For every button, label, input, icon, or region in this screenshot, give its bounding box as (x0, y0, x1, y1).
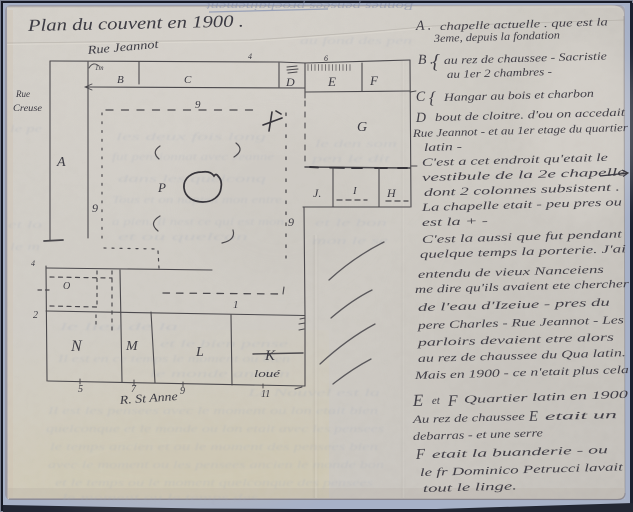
svg-text:a pien. Il nest ce qui est mon: a pien. Il nest ce qui est mon (112, 217, 284, 228)
svg-text:Creuse: Creuse (13, 103, 42, 113)
svg-text:A: A (56, 155, 66, 170)
svg-text:1: 1 (233, 299, 239, 311)
svg-text:les deux fois long: les deux fois long (116, 132, 266, 143)
svg-text:et le bon: et le bon (315, 218, 387, 229)
svg-text:loué: loué (254, 368, 282, 380)
svg-text:P: P (157, 180, 166, 195)
svg-text:le m: le m (10, 242, 41, 253)
svg-text:9: 9 (92, 201, 98, 215)
svg-text:9: 9 (180, 386, 185, 397)
svg-text:2: 2 (33, 310, 38, 321)
svg-text:M: M (125, 339, 139, 354)
svg-text:C: C (184, 74, 192, 86)
svg-text:E: E (412, 391, 425, 410)
svg-text:et: et (432, 395, 441, 407)
svg-text:G: G (357, 120, 367, 135)
svg-text:et lo: et lo (8, 220, 42, 231)
svg-text:le pe: le pe (10, 124, 43, 135)
svg-text:J.: J. (313, 186, 321, 200)
svg-text:le den som: le den som (315, 139, 398, 150)
svg-text:F: F (369, 73, 379, 88)
svg-text:le temps ancien et ou le momen: le temps ancien et ou le moment des pens… (50, 442, 378, 453)
svg-text:4: 4 (248, 52, 252, 61)
svg-text:le moment ou le temps des: le moment ou le temps des (62, 493, 258, 504)
svg-text:L: L (195, 345, 204, 360)
svg-text:H: H (386, 186, 397, 200)
svg-text:et le temps ou le moment quelc: et le temps ou le moment quelconque des … (55, 478, 373, 489)
svg-text:au fond des pen: au fond des pen (300, 36, 412, 47)
svg-text:fut pensionnat avec Jeanne: fut pensionnat avec Jeanne (112, 152, 274, 163)
svg-text:D: D (285, 75, 295, 89)
svg-text:Tous et on napten mon entre: Tous et on napten mon entre (112, 195, 282, 206)
svg-text:Il est les pensees avec le mom: Il est les pensees avec le moment ou lon… (46, 406, 378, 417)
svg-text:B: B (117, 74, 124, 86)
svg-text:dans les quelconq: dans les quelconq (118, 174, 266, 185)
svg-text:E: E (327, 74, 336, 89)
svg-text:F: F (447, 393, 458, 410)
svg-text:4: 4 (31, 259, 35, 268)
svg-text:K: K (264, 348, 276, 364)
svg-text:pen le dit: pen le dit (310, 154, 392, 165)
svg-text:5: 5 (78, 384, 83, 395)
svg-text:11: 11 (261, 389, 270, 400)
svg-text:6: 6 (324, 54, 328, 63)
svg-text:le lieu de la: le lieu de la (60, 322, 178, 333)
svg-text:9: 9 (195, 99, 201, 111)
svg-text:Rue: Rue (15, 89, 30, 99)
svg-text:est la + -: est la + - (422, 215, 489, 229)
svg-text:quelconque et le monde ou lon: quelconque et le monde ou lon etait avec… (46, 424, 384, 435)
svg-text:O: O (63, 281, 70, 292)
svg-text:Il est en ce temps le moment o: Il est en ce temps le moment ou bien (56, 354, 290, 365)
svg-text:1m: 1m (95, 64, 104, 72)
svg-text:D: D (415, 111, 427, 126)
svg-text:avec le moment ou les pensees: avec le moment ou les pensees ancien le … (48, 460, 384, 471)
svg-text:etait un: etait un (545, 409, 618, 423)
svg-text:N: N (70, 338, 83, 355)
svg-text:{: { (432, 51, 440, 73)
svg-text:E: E (528, 409, 539, 425)
svg-text:9: 9 (288, 215, 294, 229)
svg-text:latin -: latin - (424, 141, 463, 154)
svg-text:C: C (416, 90, 426, 105)
svg-text:F: F (415, 447, 426, 463)
svg-text:A .: A . (415, 19, 432, 34)
svg-text:{: { (429, 88, 436, 107)
